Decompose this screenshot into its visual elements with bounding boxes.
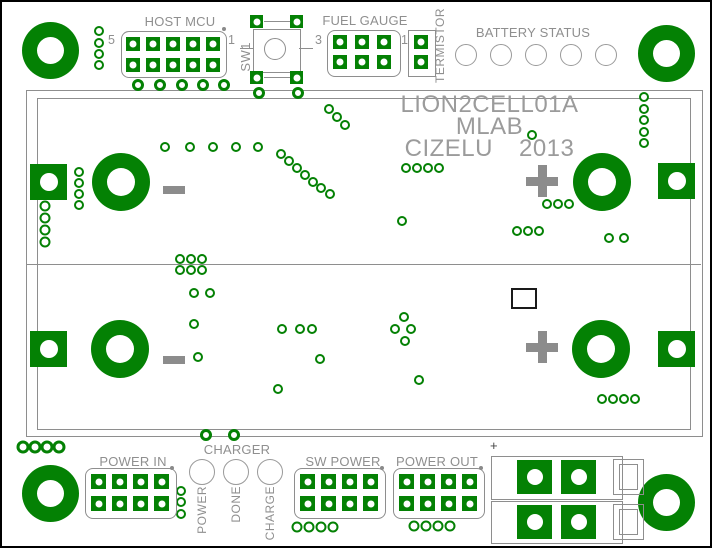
via: [423, 163, 433, 173]
pin-pad: [342, 496, 357, 511]
sw-power-pads: [300, 474, 378, 511]
charger-done-label: DONE: [229, 486, 243, 523]
terminal-pad-upper-left: [30, 164, 67, 200]
via: [390, 324, 400, 334]
pin-pad: [91, 496, 106, 511]
charger-power-label: POWER: [195, 486, 209, 534]
fuel-gauge-pin1-number: 1: [401, 33, 408, 47]
host-mcu-pin1-dot: [222, 27, 226, 31]
charger-done-led: [223, 459, 249, 485]
host-mcu-label: HOST MCU: [130, 14, 230, 29]
via: [639, 104, 649, 114]
via: [445, 521, 456, 532]
via: [399, 312, 409, 322]
pin-pad: [154, 474, 169, 489]
battery-status-led: [525, 44, 547, 66]
via: [400, 336, 410, 346]
via: [94, 49, 104, 59]
terminal-row2-outline: [491, 501, 623, 544]
terminal-row2-pad: [517, 505, 552, 539]
via: [295, 324, 305, 334]
via: [542, 199, 552, 209]
pin-pad: [206, 37, 220, 51]
sw1-pad: [250, 15, 263, 28]
via: [253, 87, 265, 99]
pin-pad: [112, 496, 127, 511]
via: [307, 324, 317, 334]
power-out-pads: [399, 474, 477, 511]
termistor-label: TERMISTOR: [433, 8, 447, 83]
pin-pad: [146, 58, 160, 72]
via: [277, 324, 287, 334]
battery-hole-upper-right: [573, 153, 631, 211]
via: [176, 79, 188, 91]
title-block: LION2CELL01A MLAB CIZELU 2013: [392, 94, 587, 160]
mounting-hole-bottom-left: [22, 465, 79, 522]
power-out-pin1-dot: [479, 466, 483, 470]
pin-pad: [91, 474, 106, 489]
charger-charge-led: [257, 459, 283, 485]
pin-pad: [112, 474, 127, 489]
sw1-pad: [290, 15, 303, 28]
via: [553, 199, 563, 209]
battery-status-leds: [455, 44, 617, 66]
via: [316, 522, 327, 533]
via: [401, 163, 411, 173]
pin-pad: [414, 55, 428, 69]
pin-pad: [321, 496, 336, 511]
via: [564, 199, 574, 209]
terminal-pad-upper-right: [658, 163, 695, 199]
via: [512, 226, 522, 236]
pin-pad: [355, 55, 369, 69]
via: [534, 226, 544, 236]
via: [397, 216, 407, 226]
battery-status-led: [490, 44, 512, 66]
via: [228, 429, 240, 441]
sw1-lead-line: [264, 77, 291, 78]
terminal-row1-pad: [561, 460, 596, 494]
sw1-button-circle: [264, 38, 286, 60]
pin-pad: [441, 496, 456, 511]
charger-label: CHARGER: [187, 442, 287, 457]
sw1-lead-line: [299, 48, 313, 49]
pin-pad: [441, 474, 456, 489]
terminal-row1-clamp: [613, 459, 644, 495]
terminal-row1-pad: [517, 460, 552, 494]
via: [185, 142, 195, 152]
via: [176, 486, 186, 496]
minus-polarity-icon: [163, 356, 185, 364]
via: [328, 522, 339, 533]
via: [176, 497, 186, 507]
via: [154, 79, 166, 91]
sw-power-pin1-dot: [380, 466, 384, 470]
mounting-hole-top-right: [638, 25, 695, 82]
via: [608, 394, 618, 404]
via: [630, 394, 640, 404]
via: [186, 254, 196, 264]
via: [74, 189, 84, 199]
via: [175, 265, 185, 275]
via: [200, 429, 212, 441]
mounting-hole-top-left: [22, 22, 79, 79]
pin-pad: [333, 35, 347, 49]
power-out-label: POWER OUT: [387, 454, 487, 469]
via: [74, 200, 84, 210]
via: [218, 79, 230, 91]
sw1-pad: [250, 71, 263, 84]
pin-pad: [414, 35, 428, 49]
via: [132, 79, 144, 91]
pin-pad: [377, 35, 391, 49]
via: [325, 189, 335, 199]
via: [619, 233, 629, 243]
via: [604, 233, 614, 243]
pin-pad: [133, 496, 148, 511]
via: [434, 163, 444, 173]
sw1-lead-line: [264, 21, 291, 22]
via: [273, 384, 283, 394]
power-in-label: POWER IN: [83, 454, 183, 469]
via: [412, 163, 422, 173]
via: [186, 265, 196, 275]
via: [639, 92, 649, 102]
host-mcu-pads: [126, 37, 220, 72]
battery-hole-lower-left: [91, 320, 149, 378]
via: [189, 319, 199, 329]
terminal-row2-clamp: [613, 504, 644, 540]
via: [597, 394, 607, 404]
pin-pad: [166, 37, 180, 51]
pin-pad: [133, 474, 148, 489]
pin-pad: [206, 58, 220, 72]
pin-pad: [186, 58, 200, 72]
pin-pad: [399, 474, 414, 489]
terminal-pad-lower-right: [658, 331, 695, 367]
via: [304, 522, 315, 533]
via: [94, 26, 104, 36]
host-mcu-pin1-number: 1: [228, 33, 235, 47]
pin-pad: [186, 37, 200, 51]
pin-pad: [333, 55, 347, 69]
pin-pad: [126, 58, 140, 72]
pin-pad: [355, 35, 369, 49]
via: [40, 201, 51, 212]
power-in-pin1-dot: [170, 466, 174, 470]
via: [40, 225, 51, 236]
battery-status-label: BATTERY STATUS: [458, 25, 608, 40]
via: [53, 441, 66, 454]
terminal-row2-pad: [561, 505, 596, 539]
sw-power-label: SW POWER: [293, 454, 393, 469]
charger-charge-label: CHARGE: [263, 486, 277, 540]
via: [292, 87, 304, 99]
via: [315, 354, 325, 364]
author-name: CIZELU: [405, 138, 493, 160]
plus-polarity-icon: [526, 165, 558, 197]
via: [639, 127, 649, 137]
battery-status-led: [560, 44, 582, 66]
via: [253, 142, 263, 152]
via: [197, 265, 207, 275]
via: [523, 226, 533, 236]
pin-pad: [126, 37, 140, 51]
via: [197, 254, 207, 264]
via: [74, 167, 84, 177]
via: [94, 38, 104, 48]
pin-pad: [363, 474, 378, 489]
pin-pad: [154, 496, 169, 511]
via: [406, 324, 416, 334]
pin-pad: [166, 58, 180, 72]
via: [639, 115, 649, 125]
pin-pad: [462, 474, 477, 489]
pin-pad: [399, 496, 414, 511]
mounting-hole-bottom-right: [638, 474, 695, 531]
fuel-gauge-label: FUEL GAUGE: [315, 13, 415, 28]
pin-pad: [377, 55, 391, 69]
via: [94, 60, 104, 70]
pcb-board-image: HOST MCU 5 1 SW1 FUEL GAUGE 3 1 TERMISTO…: [0, 0, 712, 548]
via: [189, 288, 199, 298]
terminal-row1-outline: [491, 456, 623, 500]
via: [197, 79, 209, 91]
pin-pad: [300, 496, 315, 511]
minus-polarity-icon: [163, 186, 185, 194]
pin-pad: [462, 496, 477, 511]
via: [433, 521, 444, 532]
via: [40, 213, 51, 224]
sw1-label: SW1: [238, 42, 253, 72]
via: [208, 142, 218, 152]
via: [414, 375, 424, 385]
pin-pad: [420, 496, 435, 511]
battery-hole-upper-left: [92, 153, 150, 211]
via: [231, 142, 241, 152]
via: [74, 178, 84, 188]
via: [619, 394, 629, 404]
power-in-pads: [91, 474, 169, 511]
via: [421, 521, 432, 532]
host-mcu-pin5-number: 5: [108, 33, 115, 47]
via: [205, 288, 215, 298]
pin-pad: [420, 474, 435, 489]
terminal-pad-lower-left: [30, 331, 67, 367]
battery-status-led: [455, 44, 477, 66]
via: [639, 138, 649, 148]
board-year: 2013: [519, 138, 574, 160]
pin-pad: [363, 496, 378, 511]
via: [175, 254, 185, 264]
via: [340, 120, 350, 130]
via: [176, 509, 186, 519]
via: [160, 142, 170, 152]
via: [40, 237, 51, 248]
component-outline-square: [511, 288, 537, 309]
pin-pad: [146, 37, 160, 51]
fuel-gauge-pin3-number: 3: [315, 33, 322, 47]
terminal-plus-label: +: [490, 438, 498, 453]
battery-hole-lower-right: [572, 320, 630, 378]
sw1-pad: [290, 71, 303, 84]
via: [193, 352, 203, 362]
via: [292, 522, 303, 533]
via: [409, 521, 420, 532]
pin-pad: [321, 474, 336, 489]
charger-power-led: [189, 459, 215, 485]
pin-pad: [342, 474, 357, 489]
fuel-gauge-pads: [333, 35, 391, 69]
pin-pad: [300, 474, 315, 489]
battery-status-led: [595, 44, 617, 66]
termistor-pads: [414, 35, 428, 69]
plus-polarity-icon: [526, 331, 558, 363]
